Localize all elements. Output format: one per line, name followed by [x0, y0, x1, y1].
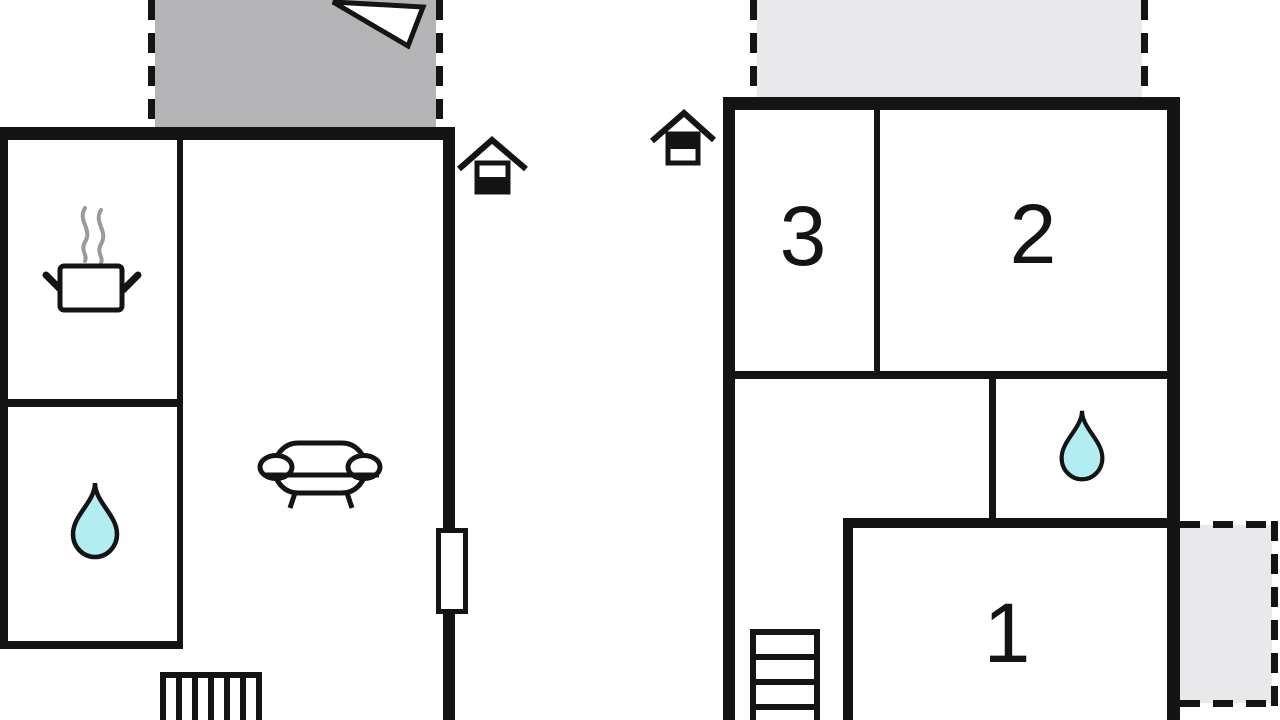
room-2-label: 2	[963, 188, 1103, 280]
water-drop-icon	[68, 480, 122, 560]
ground-wall-kitchen-divider	[177, 140, 183, 649]
ground-wall-bath-bottom	[0, 641, 183, 649]
upper-wall-middle	[723, 371, 1180, 379]
sofa-icon	[258, 440, 382, 510]
terrace-dashed-edge-left	[148, 0, 155, 127]
ground-wall-left	[0, 140, 8, 649]
balcony-top-area	[757, 0, 1142, 97]
balcony-side-area	[1180, 525, 1272, 703]
north-arrow-icon	[320, 0, 435, 55]
room-1-label: 1	[937, 587, 1077, 679]
ground-wall-top	[0, 127, 455, 140]
terrace-dashed-edge-right	[436, 0, 443, 127]
balcony-top-dashed-edge-right	[1141, 0, 1148, 97]
ground-wall-kitchen-bath	[0, 399, 183, 407]
upper-wall-right	[1167, 110, 1180, 720]
balcony-top-dashed-edge-left	[750, 0, 757, 97]
upper-wall-bath-divider	[989, 379, 996, 520]
balcony-side-dashed-edge-bottom	[1180, 700, 1278, 707]
ground-wall-right	[443, 140, 455, 720]
cooking-pot-icon	[38, 200, 146, 318]
upper-wall-room3-room2-divider	[874, 110, 880, 372]
house-level-icon-upper	[648, 105, 718, 170]
stairs-icon-upper	[750, 629, 820, 720]
upper-wall-room1-top	[843, 518, 1180, 528]
balcony-side-dashed-edge-top	[1180, 521, 1278, 528]
room-3-label: 3	[733, 190, 873, 282]
water-drop-icon-upper	[1057, 407, 1107, 483]
upper-wall-room1-left	[843, 528, 853, 720]
window-symbol	[436, 528, 468, 614]
balcony-side-dashed-edge-right	[1271, 521, 1278, 707]
floor-plan-canvas: 3 2 1	[0, 0, 1280, 720]
house-level-icon-ground	[455, 133, 530, 198]
stairs-icon-ground	[160, 672, 262, 720]
upper-wall-top	[723, 97, 1180, 110]
